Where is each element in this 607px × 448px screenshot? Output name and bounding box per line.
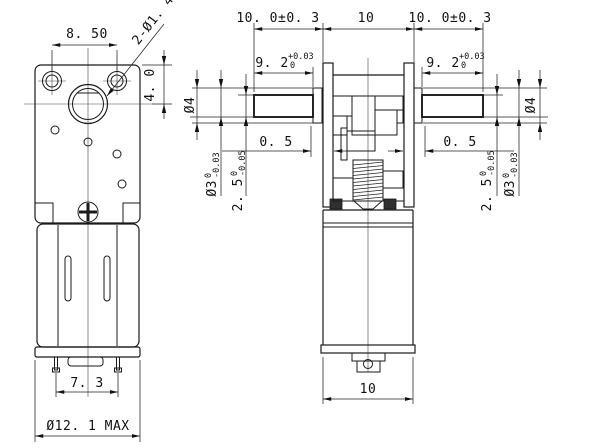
gear-block-b [352,96,375,135]
shaft-extension-lines [190,88,548,123]
pilot-hole-1 [51,126,59,134]
dim-flat-len-left: 9. 2 +0.03 0 [254,52,314,87]
gear-block-d [375,110,397,135]
gear-pin [341,128,347,160]
dim-boss-offset: 4. 0 [142,50,172,119]
end-tab-lower [357,361,380,372]
dim-max-dia: Ø12. 1 MAX [35,360,140,442]
dim-shaft-dia-left-text: Ø4 [183,97,198,114]
dim-flat-height-left-text: 2. 5 [231,178,246,211]
pilot-hole-4 [118,180,126,188]
gear-block-i [333,178,353,201]
dim-bearing-dia-right: Ø3 0 -0.03 [502,70,521,197]
dim-shaft-dia-left: Ø4 [183,70,199,140]
motor-slot-right [104,256,110,301]
dim-pin-pitch-text: 7. 3 [70,376,103,391]
dim-holes-note-text: 2-Ø1. 4 [130,0,178,48]
dim-flat-len-left-tol-dn: 0 [290,61,295,71]
dim-bearing-dia-right-tol-dn: -0.03 [510,152,520,178]
dim-bearing-dia-right-text: Ø3 [503,180,518,197]
side-view: 10. 0±0. 3 10 10. 0±0. 3 9. 2 +0.03 0 9.… [183,11,548,404]
dim-bearing-dia-left-text: Ø3 [205,180,220,197]
dim-hole-spacing-text: 8. 50 [66,27,108,42]
dim-shaft-left-text: 10. 0±0. 3 [236,11,319,26]
motor-end-cap-front [35,347,140,357]
dim-motor-width-text: 10 [360,382,377,397]
dim-flat-len-right: 9. 2 +0.03 0 [422,52,485,87]
gear-block-g [347,131,375,151]
flange-right [404,63,414,207]
front-view: 8. 50 2-Ø1. 4 4. 0 7. 3 Ø12. [24,0,177,442]
bearing-hub-right [414,88,422,123]
dim-shaft-dia-right: Ø4 [524,70,542,140]
gear-block-h [383,171,403,188]
dim-hub-gap-right-text: 0. 5 [443,135,476,150]
gear-motor-drawing: 8. 50 2-Ø1. 4 4. 0 7. 3 Ø12. [0,0,607,448]
drawing-canvas: 8. 50 2-Ø1. 4 4. 0 7. 3 Ø12. [0,0,607,448]
dim-flat-height-right-text: 2. 5 [480,178,495,211]
gear-block-e [397,110,403,123]
dim-case-width-text: 10 [358,11,375,26]
motor-slot-left [65,256,71,301]
flange-left [323,63,333,207]
dim-shaft-right-text: 10. 0±0. 3 [408,11,491,26]
plate-notch-left [35,203,53,223]
output-shaft-left [254,95,313,117]
dim-flat-height-left-tol-dn: -0.05 [238,150,248,176]
pilot-hole-3 [113,150,121,158]
dim-flat-len-left-text: 9. 2 [255,56,288,71]
gear-block-a [333,96,352,116]
dim-flat-height-left: 2. 5 0 -0.05 [230,74,248,211]
dim-shaft-dia-right-text: Ø4 [524,97,539,114]
gear-block-c [375,96,403,110]
dim-flat-height-right-tol-dn: -0.05 [487,150,497,176]
gear-block-f [333,116,347,135]
dim-bearing-dia-left: Ø3 0 -0.03 [204,70,223,197]
flange-foot-right [384,199,396,209]
dim-boss-offset-text: 4. 0 [143,68,158,101]
dim-flat-len-right-tol-dn: 0 [461,61,466,71]
dim-hub-gap-left-text: 0. 5 [259,135,292,150]
dim-flat-len-right-text: 9. 2 [426,56,459,71]
brush-bump [68,357,103,366]
bearing-hub-left [313,88,322,123]
dim-case-width: 10 [323,11,414,62]
dim-pin-pitch: 7. 3 [56,373,118,397]
dim-bearing-dia-left-tol-dn: -0.03 [212,152,222,178]
dim-max-dia-text: Ø12. 1 MAX [46,419,129,434]
plate-notch-right [123,203,140,223]
output-shaft-right [422,95,483,117]
